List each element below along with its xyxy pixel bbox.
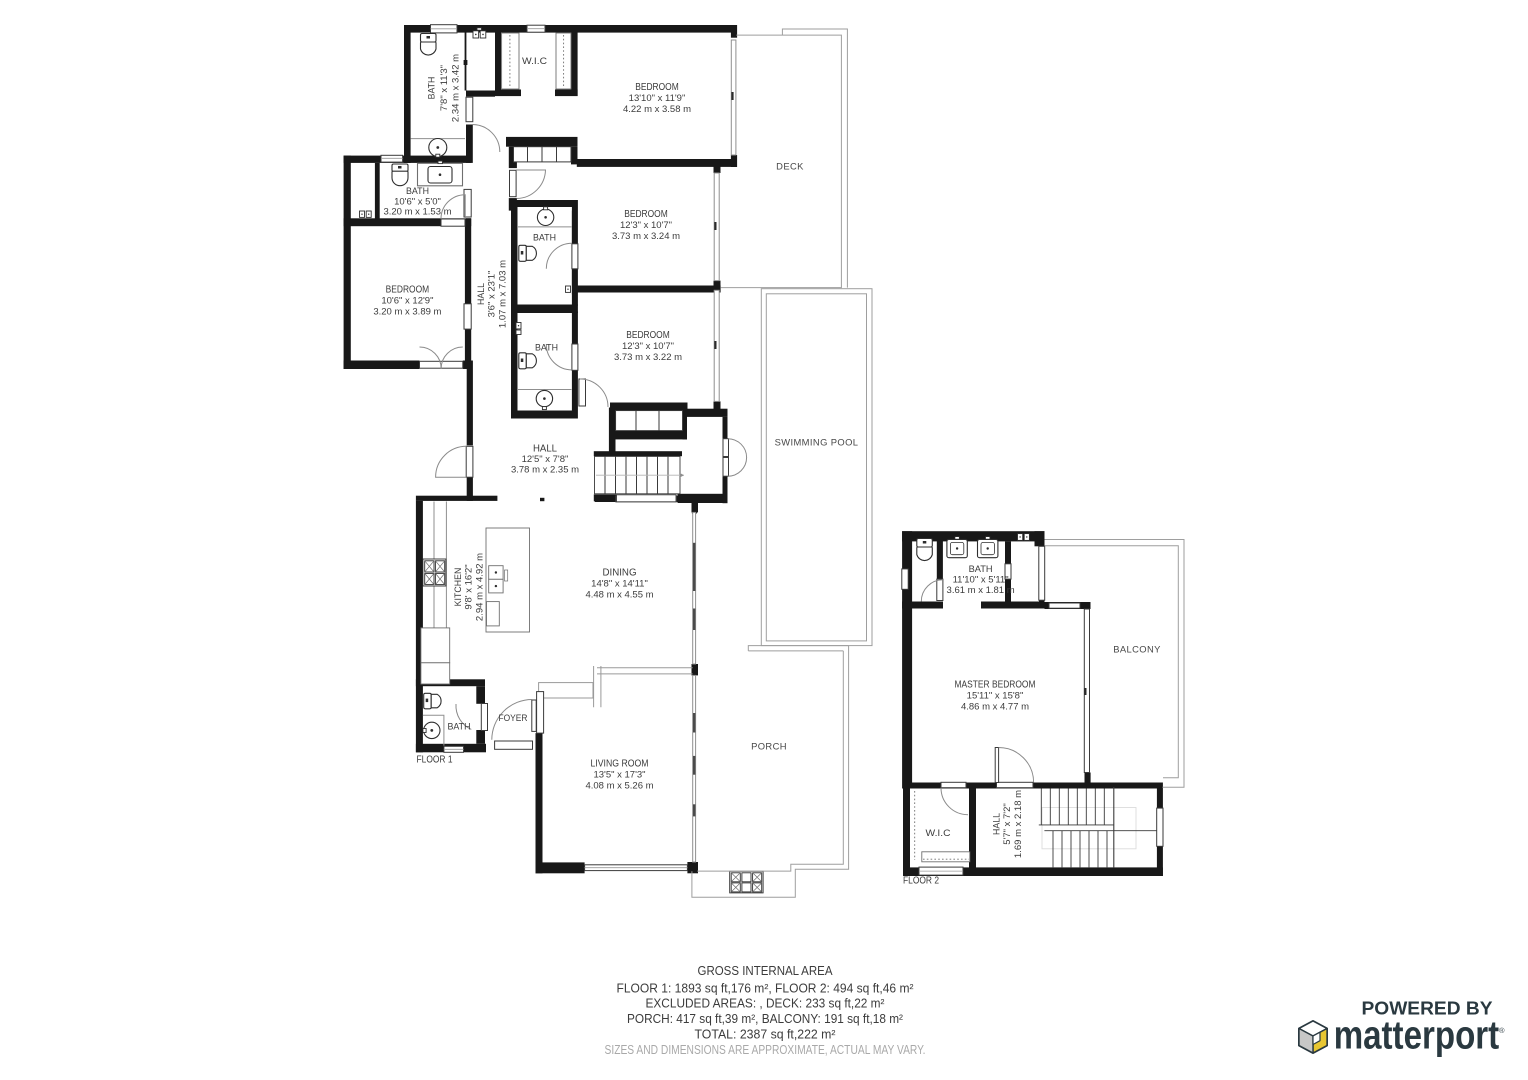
svg-text:SIZES AND DIMENSIONS ARE APPRO: SIZES AND DIMENSIONS ARE APPROXIMATE, AC…: [605, 1043, 926, 1057]
svg-text:MASTER BEDROOM: MASTER BEDROOM: [955, 680, 1036, 691]
svg-text:BATH: BATH: [969, 564, 993, 574]
svg-text:BATH: BATH: [406, 186, 429, 196]
svg-text:3.78 m x 2.35 m: 3.78 m x 2.35 m: [511, 465, 579, 476]
svg-text:HALL: HALL: [533, 444, 557, 455]
svg-text:EXCLUDED AREAS: , DECK: 233 sq: EXCLUDED AREAS: , DECK: 233 sq ft,22 m²: [646, 996, 886, 1011]
svg-text:11'10" x 5'11": 11'10" x 5'11": [953, 575, 1009, 586]
svg-text:HALL: HALL: [476, 283, 486, 305]
svg-text:3'6" x 23'1": 3'6" x 23'1": [487, 271, 498, 318]
svg-text:12'3" x 10'7": 12'3" x 10'7": [622, 341, 674, 352]
svg-text:FLOOR 1: FLOOR 1: [417, 755, 453, 766]
svg-text:10'6" x 12'9": 10'6" x 12'9": [381, 296, 433, 307]
svg-text:4.08 m x 5.26 m: 4.08 m x 5.26 m: [585, 781, 653, 792]
svg-text:BATH: BATH: [427, 77, 437, 100]
svg-text:2.94 m x 4.92 m: 2.94 m x 4.92 m: [475, 553, 486, 621]
svg-text:SWIMMING POOL: SWIMMING POOL: [775, 437, 859, 448]
svg-text:PORCH: PORCH: [751, 741, 787, 752]
svg-text:DINING: DINING: [603, 568, 637, 579]
svg-text:W.I.C: W.I.C: [926, 828, 952, 838]
svg-text:4.22 m x 3.58 m: 4.22 m x 3.58 m: [623, 104, 691, 115]
svg-text:BEDROOM: BEDROOM: [386, 285, 430, 296]
svg-text:GROSS INTERNAL AREA: GROSS INTERNAL AREA: [698, 963, 833, 978]
svg-text:matterport: matterport: [1334, 1014, 1500, 1058]
svg-text:4.86 m x 4.77 m: 4.86 m x 4.77 m: [961, 702, 1029, 713]
svg-text:BATH: BATH: [533, 233, 556, 243]
svg-text:FLOOR 2: FLOOR 2: [903, 876, 939, 887]
svg-text:BEDROOM: BEDROOM: [624, 209, 668, 220]
svg-text:1.69 m x 2.18 m: 1.69 m x 2.18 m: [1013, 790, 1024, 858]
svg-text:12'5" x 7'8": 12'5" x 7'8": [522, 454, 569, 465]
svg-text:KITCHEN: KITCHEN: [453, 568, 463, 607]
svg-text:7'8" x 11'3": 7'8" x 11'3": [439, 65, 450, 111]
svg-text:13'10" x 11'9": 13'10" x 11'9": [629, 93, 686, 104]
svg-text:12'3" x 10'7": 12'3" x 10'7": [620, 220, 672, 231]
svg-text:3.20 m x 3.89 m: 3.20 m x 3.89 m: [373, 307, 441, 318]
svg-text:LIVING ROOM: LIVING ROOM: [591, 759, 649, 770]
svg-text:HALL: HALL: [992, 813, 1002, 835]
svg-text:FLOOR 1: 1893 sq ft,176 m², FL: FLOOR 1: 1893 sq ft,176 m², FLOOR 2: 494…: [617, 981, 915, 996]
svg-text:BEDROOM: BEDROOM: [635, 82, 679, 93]
svg-text:9'8' x 16'2": 9'8' x 16'2": [464, 564, 475, 609]
svg-text:TOTAL: 2387 sq ft,222 m²: TOTAL: 2387 sq ft,222 m²: [695, 1027, 837, 1042]
svg-text:FOYER: FOYER: [499, 713, 528, 723]
svg-text:BATH: BATH: [535, 343, 558, 353]
svg-text:13'5" x 17'3": 13'5" x 17'3": [593, 770, 645, 781]
svg-text:3.73 m x 3.24 m: 3.73 m x 3.24 m: [612, 231, 680, 242]
svg-text:3.20 m x 1.53 m: 3.20 m x 1.53 m: [383, 207, 451, 218]
svg-text:®: ®: [1499, 1026, 1505, 1035]
svg-text:3.61 m x 1.81 m: 3.61 m x 1.81 m: [947, 585, 1015, 596]
svg-text:3.73 m x 3.22 m: 3.73 m x 3.22 m: [614, 352, 682, 363]
svg-text:W.I.C: W.I.C: [522, 56, 548, 66]
svg-text:BEDROOM: BEDROOM: [626, 330, 670, 341]
svg-text:14'8" x 14'11": 14'8" x 14'11": [591, 579, 648, 590]
svg-text:5'7" x 7'2": 5'7" x 7'2": [1002, 803, 1013, 845]
svg-text:PORCH: 417 sq ft,39 m², BALCON: PORCH: 417 sq ft,39 m², BALCONY: 191 sq …: [627, 1011, 904, 1026]
svg-text:1.07 m x 7.03 m: 1.07 m x 7.03 m: [498, 260, 509, 328]
svg-text:BALCONY: BALCONY: [1113, 644, 1161, 655]
svg-text:4.48 m x 4.55 m: 4.48 m x 4.55 m: [585, 590, 653, 601]
svg-text:BATH: BATH: [448, 722, 471, 732]
svg-text:15'11" x 15'8": 15'11" x 15'8": [967, 691, 1024, 702]
svg-text:2.34 m x 3.42 m: 2.34 m x 3.42 m: [451, 54, 462, 122]
svg-text:DECK: DECK: [776, 161, 804, 172]
